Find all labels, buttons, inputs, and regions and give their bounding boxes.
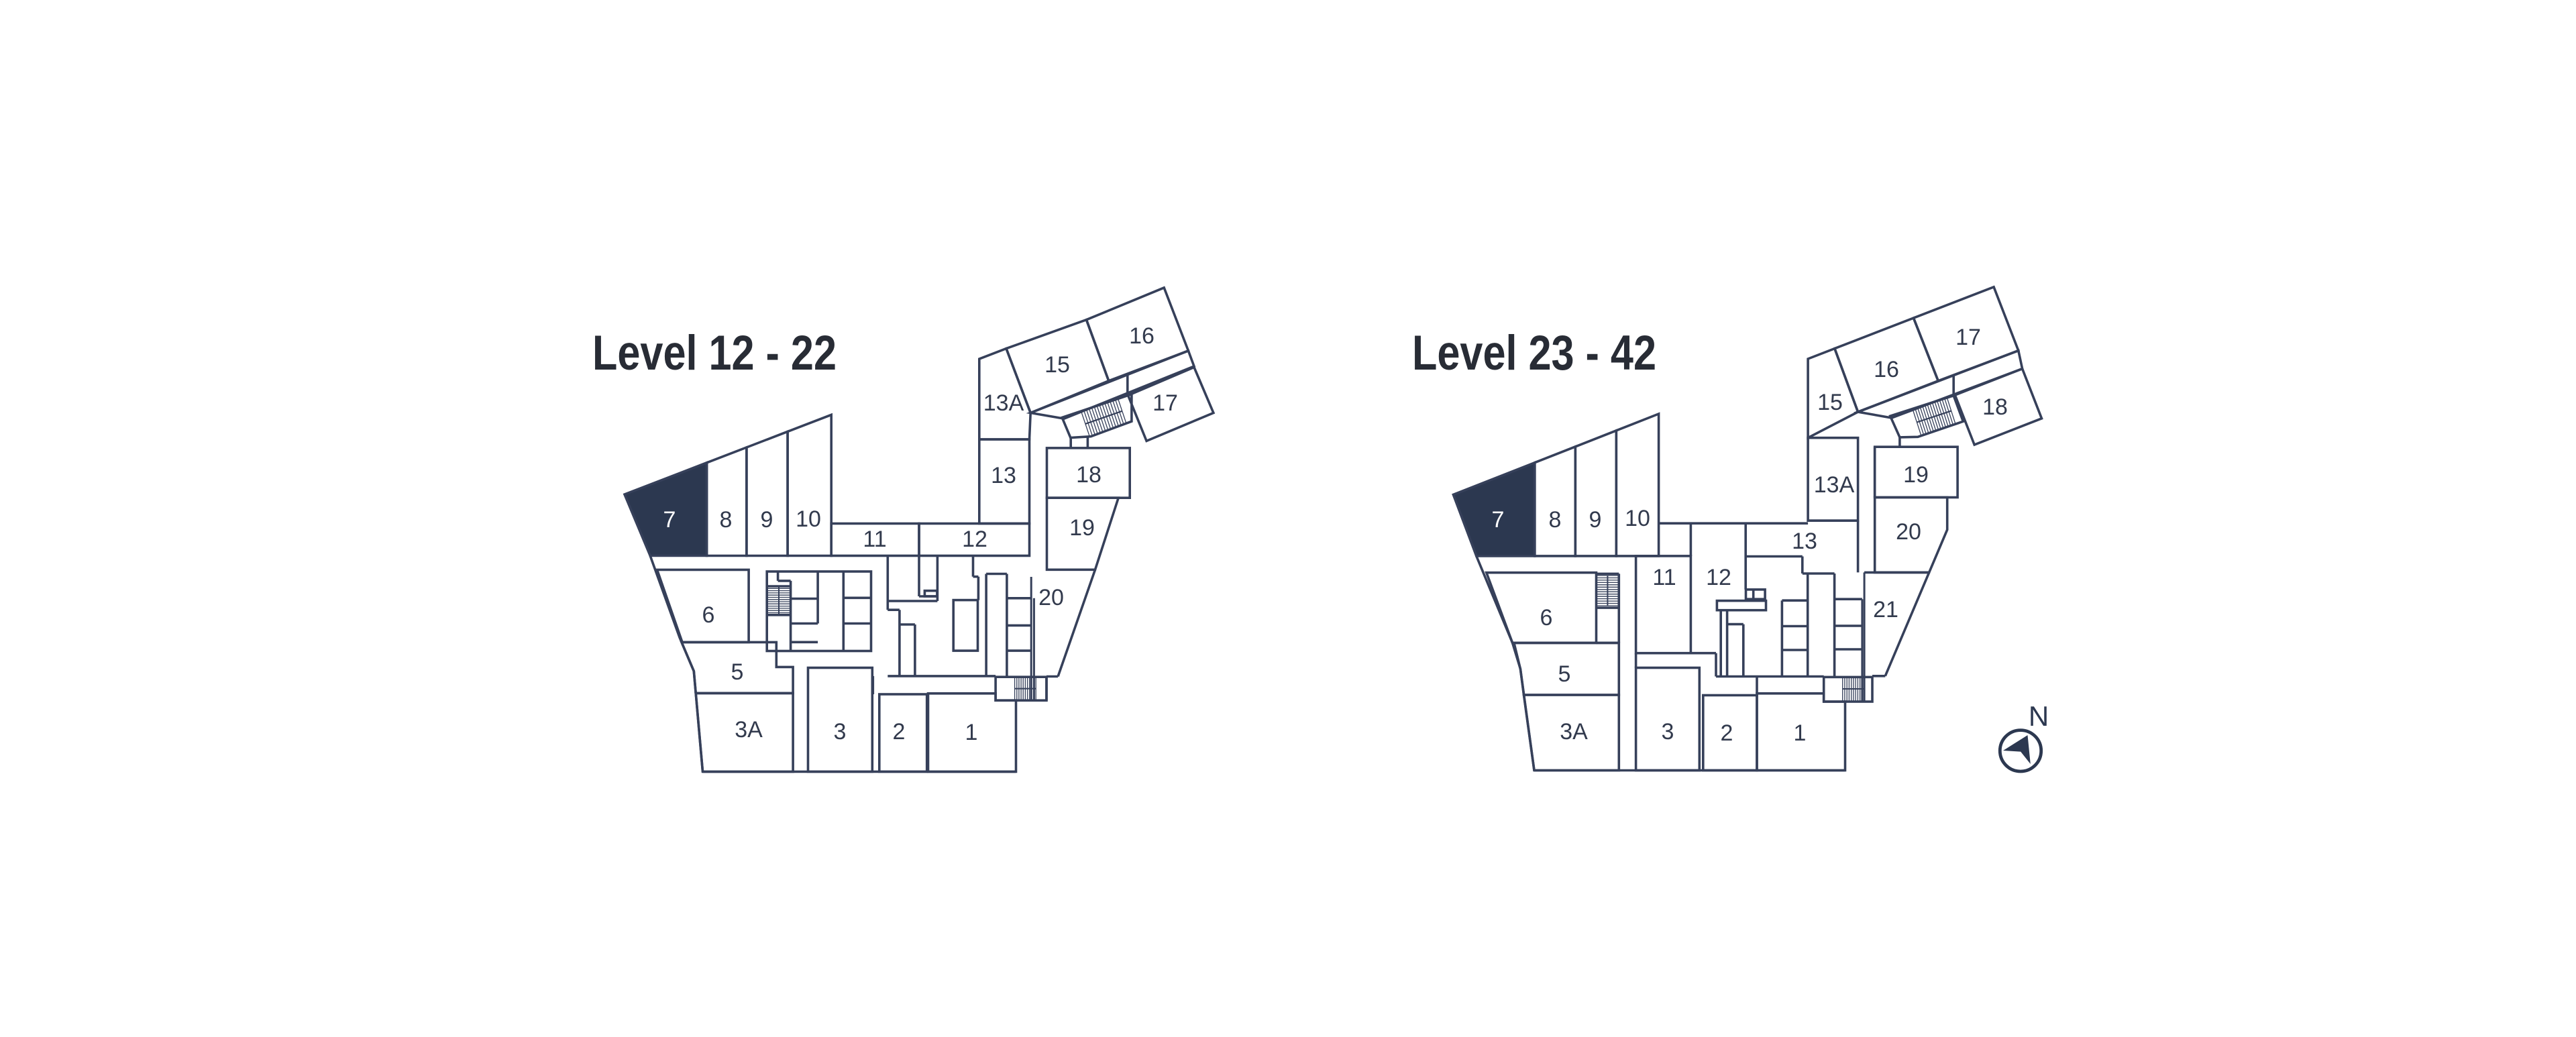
svg-text:3: 3 bbox=[1662, 719, 1674, 745]
svg-text:13A: 13A bbox=[1814, 472, 1855, 498]
svg-text:21: 21 bbox=[1873, 597, 1898, 622]
svg-text:10: 10 bbox=[1625, 506, 1650, 531]
svg-text:15: 15 bbox=[1817, 390, 1843, 415]
svg-text:8: 8 bbox=[1549, 507, 1562, 533]
svg-text:6: 6 bbox=[702, 602, 715, 628]
svg-text:1: 1 bbox=[1794, 720, 1807, 746]
svg-text:2: 2 bbox=[893, 719, 906, 745]
svg-text:2: 2 bbox=[1721, 720, 1733, 746]
svg-text:19: 19 bbox=[1069, 515, 1095, 541]
svg-text:9: 9 bbox=[1589, 507, 1602, 533]
svg-text:11: 11 bbox=[1652, 565, 1676, 590]
svg-text:7: 7 bbox=[663, 507, 676, 533]
svg-text:18: 18 bbox=[1076, 462, 1102, 488]
svg-text:16: 16 bbox=[1874, 357, 1899, 382]
svg-text:3A: 3A bbox=[1560, 719, 1588, 745]
svg-text:5: 5 bbox=[1558, 661, 1571, 687]
svg-text:20: 20 bbox=[1038, 585, 1064, 610]
svg-text:N: N bbox=[2029, 700, 2049, 732]
svg-text:Level 23 - 42: Level 23 - 42 bbox=[1412, 325, 1656, 380]
svg-text:15: 15 bbox=[1044, 352, 1070, 378]
svg-text:20: 20 bbox=[1896, 519, 1921, 545]
svg-text:17: 17 bbox=[1152, 390, 1178, 416]
svg-text:16: 16 bbox=[1129, 323, 1155, 349]
svg-text:12: 12 bbox=[962, 527, 987, 552]
svg-text:17: 17 bbox=[1955, 325, 1981, 350]
svg-text:Level 12 - 22: Level 12 - 22 bbox=[592, 325, 837, 380]
svg-text:12: 12 bbox=[1706, 565, 1731, 590]
svg-text:1: 1 bbox=[965, 720, 978, 745]
svg-text:5: 5 bbox=[731, 659, 744, 685]
svg-text:9: 9 bbox=[761, 507, 773, 533]
svg-text:3A: 3A bbox=[735, 717, 763, 743]
svg-text:13: 13 bbox=[1792, 529, 1817, 554]
svg-text:6: 6 bbox=[1540, 605, 1553, 631]
svg-text:13A: 13A bbox=[983, 390, 1024, 416]
svg-text:13: 13 bbox=[991, 463, 1016, 488]
svg-text:19: 19 bbox=[1903, 462, 1929, 488]
svg-text:10: 10 bbox=[796, 506, 821, 532]
svg-text:11: 11 bbox=[863, 527, 886, 552]
svg-text:8: 8 bbox=[720, 507, 733, 533]
svg-text:7: 7 bbox=[1492, 507, 1505, 533]
svg-text:3: 3 bbox=[834, 719, 847, 745]
svg-text:18: 18 bbox=[1982, 394, 2008, 420]
